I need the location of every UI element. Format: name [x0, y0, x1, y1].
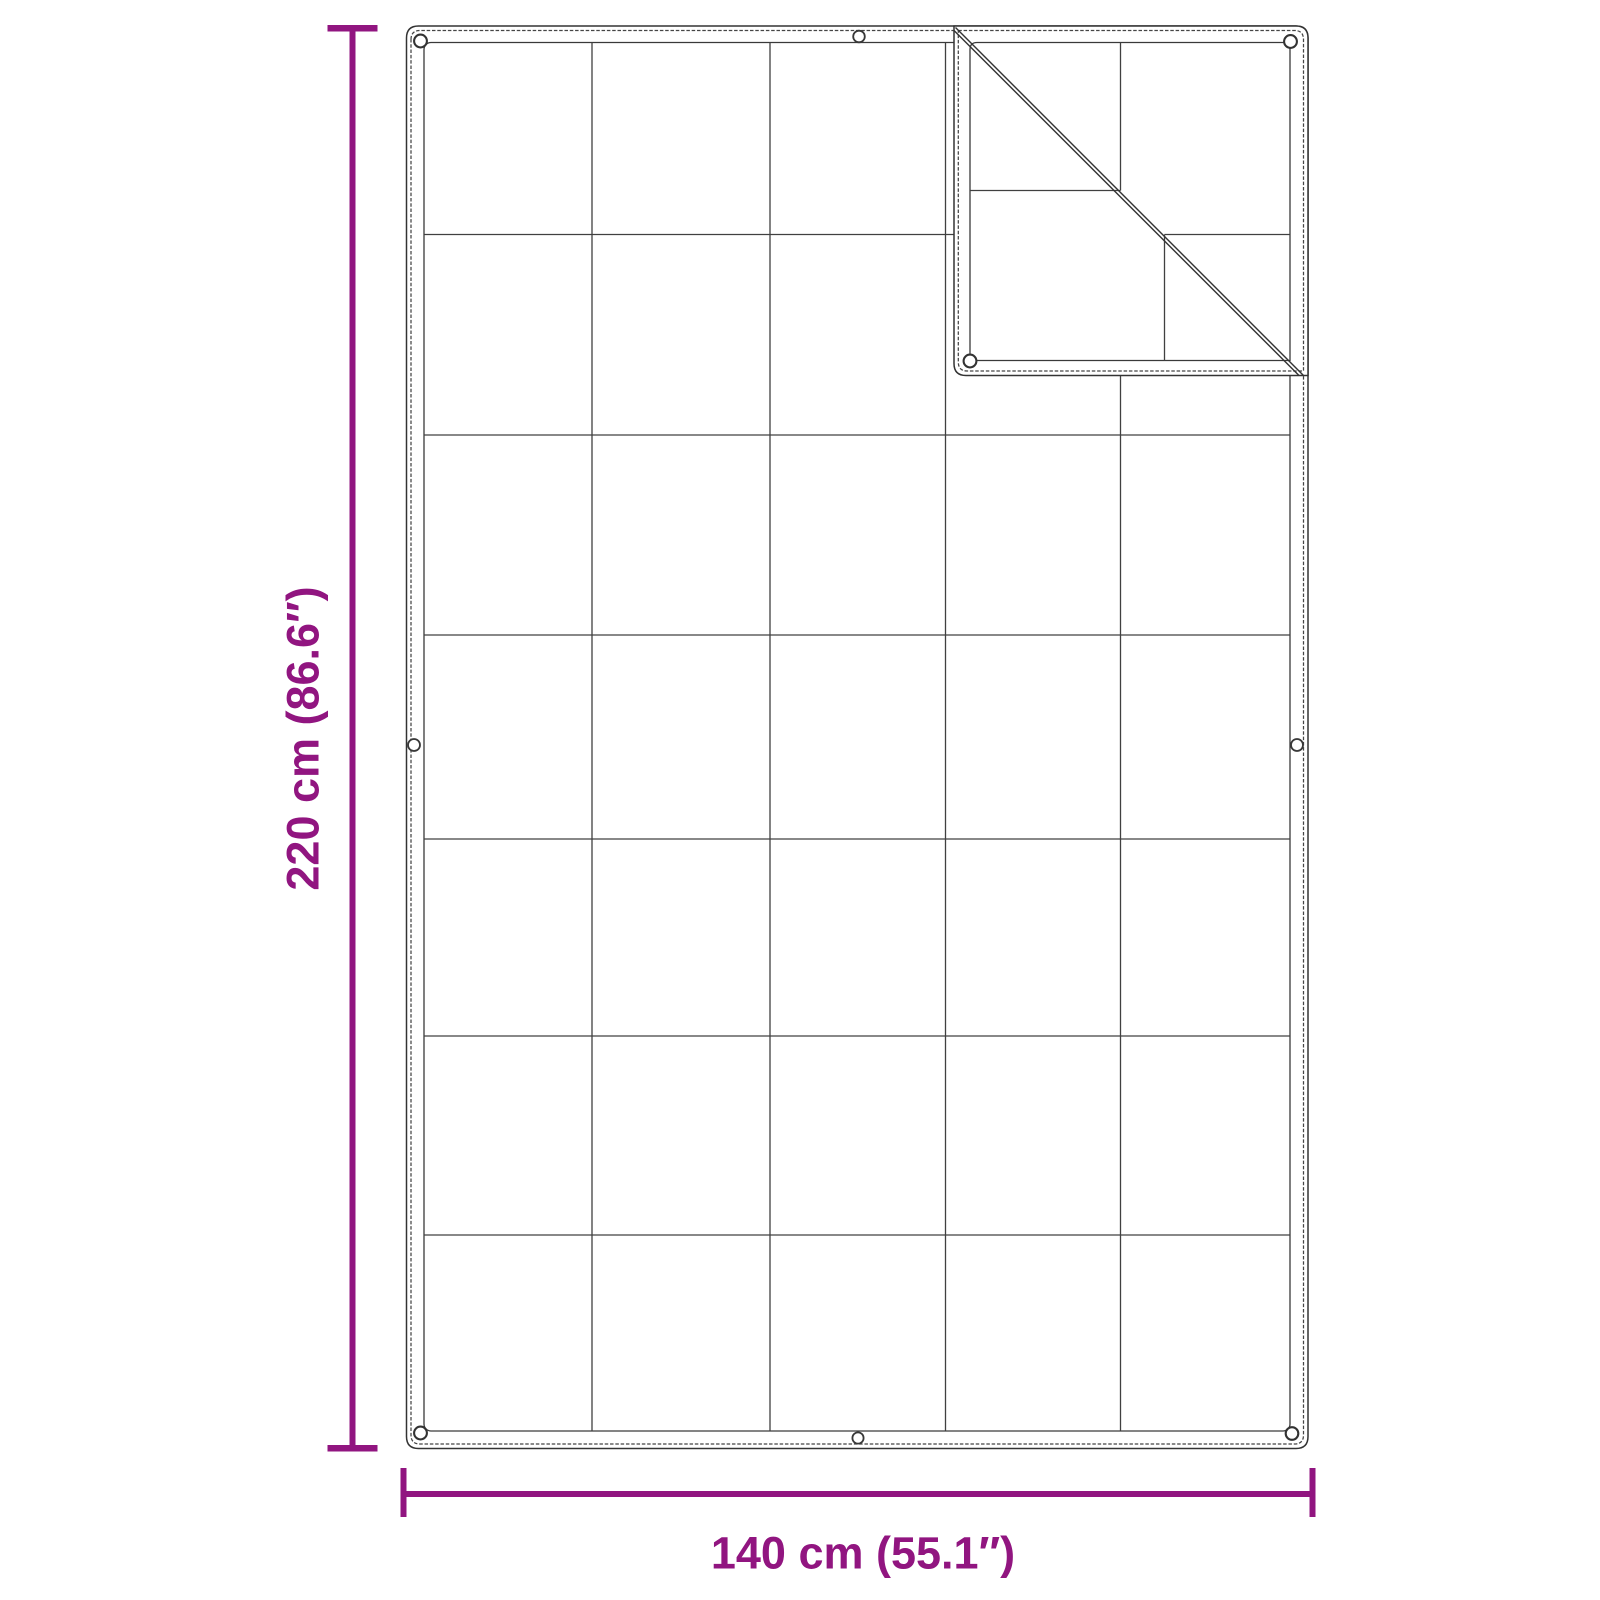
- svg-text:140 cm (55.1″): 140 cm (55.1″): [711, 1528, 1015, 1579]
- svg-text:220 cm (86.6″): 220 cm (86.6″): [278, 586, 329, 890]
